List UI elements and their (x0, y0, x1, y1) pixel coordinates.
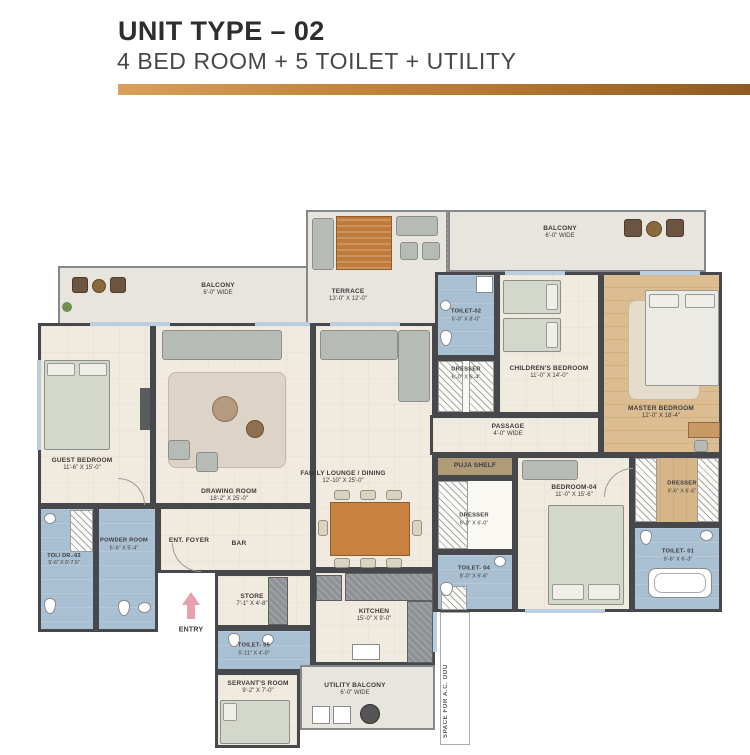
terrace-rug (336, 216, 392, 270)
window (505, 271, 565, 275)
room-dims: 5'-11" X 4'-0" (238, 650, 270, 657)
kitchen-label: KITCHEN 15'-0" X 9'-0" (357, 608, 392, 624)
balcony-table (646, 221, 662, 237)
room-name: STORE (236, 593, 267, 601)
balcony-chair (110, 277, 126, 293)
dining-chair (386, 558, 402, 568)
entry-label: ENTRY (179, 625, 203, 634)
pillow (649, 294, 679, 308)
terrace-label: TERRACE 13'-0" X 12'-0" (329, 288, 367, 304)
floor-plan-page: UNIT TYPE – 02 4 BED ROOM + 5 TOILET + U… (0, 0, 750, 755)
room-name: BALCONY (543, 225, 577, 233)
coffee-table (212, 396, 238, 422)
page-title: UNIT TYPE – 02 (118, 16, 325, 47)
ac-odu-label: SPACE FOR A.C. ODU (443, 628, 449, 738)
room-dims: 9'-6" X 6'-3" (662, 556, 694, 563)
dresser-children-label: DRESSER 6'-0" X 5'-4" (451, 367, 480, 382)
armchair (168, 440, 190, 460)
terrace-chair (422, 242, 440, 260)
room-name: DRESSER (451, 367, 480, 375)
childrens-bedroom-label: CHILDREN'S BEDROOM 11'-0" X 14'-0" (510, 365, 589, 381)
room-name: UTILITY BALCONY (324, 682, 385, 690)
side-table (246, 420, 264, 438)
room-dims: 11'-0" X 14'-0" (510, 373, 589, 381)
room-name: ENT. FOYER (169, 537, 209, 545)
window (640, 271, 700, 275)
page-subtitle: 4 BED ROOM + 5 TOILET + UTILITY (117, 48, 517, 75)
wash-basin (138, 602, 151, 613)
dining-chair (360, 558, 376, 568)
room-dims: 11'-6" X 15'-0" (52, 465, 113, 473)
balcony-chair (624, 219, 642, 237)
room-dims: 5'-6" X 9'-7.5" (47, 560, 80, 567)
entry-text: ENTRY (179, 625, 203, 634)
sofa (398, 330, 430, 402)
room-dims: 6'-0" X 5'-4" (451, 374, 480, 381)
wardrobe-hatch (697, 458, 719, 522)
terrace-balcony-divider (447, 212, 448, 270)
window (37, 360, 41, 450)
pillow (588, 584, 620, 600)
toilet-02-label: TOILET-02 6'-0" X 8'-0" (451, 309, 481, 324)
bar-label: BAR (232, 540, 247, 548)
entry-arrow-icon (182, 592, 200, 619)
room-name: MASTER BEDROOM (628, 405, 694, 413)
window (90, 322, 170, 326)
window (255, 322, 310, 326)
room-dims: 6'-0" WIDE (201, 290, 235, 298)
utility-balcony-label: UTILITY BALCONY 6'-0" WIDE (324, 682, 385, 698)
room-name: PUJA SHELF (454, 462, 496, 470)
fridge (316, 575, 342, 601)
dining-chair (334, 558, 350, 568)
passage-label: PASSAGE 4'-0" WIDE (492, 423, 525, 439)
shower (476, 276, 493, 293)
room-name: BALCONY (201, 282, 235, 290)
room-dims: 6'-0" WIDE (543, 233, 577, 241)
sofa (320, 330, 398, 360)
ent-foyer-label: ENT. FOYER (169, 537, 209, 545)
utility-sink (360, 704, 380, 724)
servants-room-label: SERVANT'S ROOM 9'-2" X 7'-0" (227, 680, 288, 696)
gold-divider-bar (118, 84, 750, 95)
room-name: TERRACE (329, 288, 367, 296)
window (525, 609, 605, 613)
room-name: BAR (232, 540, 247, 548)
pillow (47, 363, 75, 376)
pillow (552, 584, 584, 600)
room-dims: 15'-0" X 9'-0" (357, 616, 392, 624)
kitchen-sink (352, 644, 380, 660)
dining-chair (386, 490, 402, 500)
room-dims: 6'-0" WIDE (324, 690, 385, 698)
room-dims: 18'-2" X 25'-0" (201, 496, 257, 504)
pillow (223, 703, 237, 721)
room-dims: 9'-2" X 7'-0" (227, 688, 288, 696)
washing-machine (333, 706, 351, 724)
dining-chair (412, 520, 422, 536)
room-name: CHILDREN'S BEDROOM (510, 365, 589, 373)
balcony-left-label: BALCONY 6'-0" WIDE (201, 282, 235, 298)
balcony-chair (666, 219, 684, 237)
room-name: FAMILY LOUNGE / DINING (300, 470, 385, 478)
room-name: TOI./ DR.-03 (47, 553, 80, 560)
dresser-master-label: DRESSER 9'-6" X 6'-6" (667, 481, 696, 496)
powder-room-label: POWDER ROOM 5'-6" X 5'-4" (100, 538, 148, 553)
guest-bedroom-label: GUEST BEDROOM 11'-6" X 15'-0" (52, 457, 113, 473)
pillow (546, 322, 558, 348)
armchair (196, 452, 218, 472)
wash-basin (440, 300, 451, 311)
drawing-room-label: DRAWING ROOM 18'-2" X 25'-0" (201, 488, 257, 504)
room-name: TOILET-02 (451, 309, 481, 317)
store-label: STORE 7'-1" X 4'-8" (236, 593, 267, 609)
balcony-table (92, 279, 106, 293)
room-name: PASSAGE (492, 423, 525, 431)
room-name: TOILET- 04 (458, 566, 490, 574)
terrace-sofa (396, 216, 438, 236)
terrace-sofa (312, 218, 334, 270)
room-dims: 13'-0" X 12'-0" (329, 296, 367, 304)
toilet-05-label: TOILET- 05 5'-11" X 4'-0" (238, 643, 270, 658)
dining-table (330, 502, 410, 556)
bedroom-04-label: BEDROOM-04 11'-0" X 15'-6" (551, 484, 596, 500)
room-dims: 12'-0" X 18'-4" (628, 413, 694, 421)
dining-chair (318, 520, 328, 536)
wash-basin (494, 556, 506, 567)
dining-chair (360, 490, 376, 500)
room-dims: 11'-0" X 15'-6" (551, 492, 596, 500)
wardrobe-hatch (70, 510, 93, 552)
wash-basin (44, 513, 56, 524)
room-dims: 6'-0" X 8'-0" (451, 316, 481, 323)
room-dims: 7'-1" X 4'-8" (236, 601, 267, 609)
room-name: DRESSER (459, 513, 488, 521)
wash-basin (700, 530, 713, 541)
store-shelf (268, 577, 288, 625)
room-dims: 4'-0" WIDE (492, 431, 525, 439)
sofa (162, 330, 282, 360)
kitchen-counter (407, 601, 433, 663)
desk (688, 422, 720, 438)
room-name: TOILET- 05 (238, 643, 270, 651)
room-name: TOILET- 01 (662, 549, 694, 557)
dresser-bed04-label: DRESSER 6'-0" X 6'-0" (459, 513, 488, 528)
plant (62, 302, 72, 312)
room-name: SERVANT'S ROOM (227, 680, 288, 688)
balcony-chair (72, 277, 88, 293)
dining-chair (334, 490, 350, 500)
room-dims: 5'-6" X 5'-4" (100, 545, 148, 552)
room-name: POWDER ROOM (100, 538, 148, 546)
kitchen-counter (345, 573, 433, 601)
room-dims: 6'-0" X 6'-0" (459, 520, 488, 527)
balcony-right-label: BALCONY 6'-0" WIDE (543, 225, 577, 241)
terrace-chair (400, 242, 418, 260)
room-name: DRESSER (667, 481, 696, 489)
toilet-04-label: TOILET- 04 8'-0" X 6'-6" (458, 566, 490, 581)
desk-chair (694, 440, 708, 452)
toilet-01-label: TOILET- 01 9'-6" X 6'-3" (662, 549, 694, 564)
window (330, 322, 400, 326)
room-dims: 8'-0" X 6'-6" (458, 573, 490, 580)
window (433, 612, 437, 652)
room-name: GUEST BEDROOM (52, 457, 113, 465)
washing-machine (312, 706, 330, 724)
room-dims: 12'-10" X 25'-0" (300, 478, 385, 486)
pillow (79, 363, 107, 376)
pillow (685, 294, 715, 308)
family-lounge-label: FAMILY LOUNGE / DINING 12'-10" X 25'-0" (300, 470, 385, 486)
master-bedroom-label: MASTER BEDROOM 12'-0" X 18'-4" (628, 405, 694, 421)
room-name: DRAWING ROOM (201, 488, 257, 496)
sofa (522, 460, 578, 480)
wardrobe (140, 388, 150, 430)
pillow (546, 284, 558, 310)
toi-dr-03-label: TOI./ DR.-03 5'-6" X 9'-7.5" (47, 553, 80, 567)
wardrobe-hatch (635, 458, 657, 522)
room-name: BEDROOM-04 (551, 484, 596, 492)
bathtub-inner (654, 573, 706, 593)
room-dims: 9'-6" X 6'-6" (667, 488, 696, 495)
puja-shelf-label: PUJA SHELF (454, 462, 496, 470)
room-name: KITCHEN (357, 608, 392, 616)
